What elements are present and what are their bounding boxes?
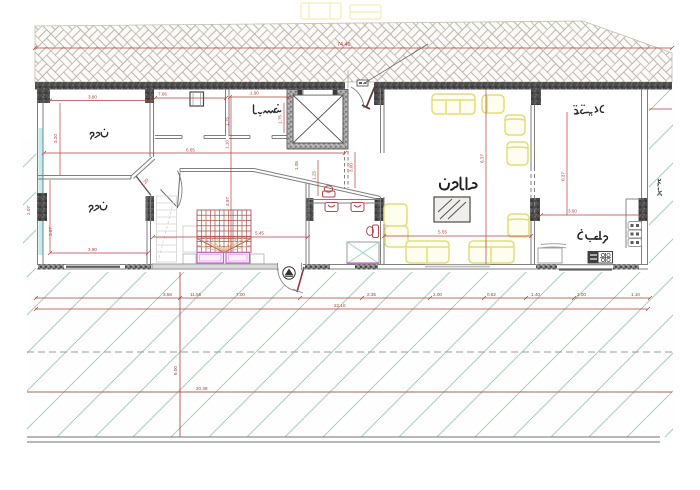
svg-text:1.90: 1.90 [250, 91, 259, 96]
svg-text:1.75: 1.75 [278, 115, 283, 124]
svg-text:11.55: 11.55 [190, 292, 202, 297]
svg-text:7.00: 7.00 [236, 292, 245, 297]
svg-text:2.35: 2.35 [367, 292, 376, 297]
svg-text:20.38: 20.38 [196, 386, 208, 391]
svg-text:3.58: 3.58 [163, 292, 172, 297]
svg-text:3.67: 3.67 [48, 227, 53, 236]
svg-text:1.10: 1.10 [225, 140, 230, 149]
svg-text:3.20: 3.20 [53, 134, 58, 143]
svg-text:3.97: 3.97 [225, 197, 230, 206]
svg-text:1.40: 1.40 [531, 292, 540, 297]
svg-text:1.10: 1.10 [631, 292, 640, 297]
svg-text:5.45: 5.45 [255, 231, 264, 236]
svg-text:7.66: 7.66 [158, 92, 167, 97]
svg-text:3.90: 3.90 [88, 95, 97, 100]
svg-text:3.90: 3.90 [568, 209, 577, 214]
svg-text:2.07: 2.07 [26, 206, 31, 215]
svg-text:1.25: 1.25 [312, 171, 317, 180]
svg-text:74.40: 74.40 [337, 42, 351, 48]
svg-text:22.10: 22.10 [334, 303, 346, 308]
svg-text:5.55: 5.55 [438, 230, 447, 235]
svg-text:6.85: 6.85 [186, 148, 195, 153]
svg-text:6.00: 6.00 [173, 366, 178, 375]
svg-text:3.90: 3.90 [88, 247, 97, 252]
svg-text:3.00: 3.00 [349, 163, 354, 172]
svg-text:6.37: 6.37 [561, 172, 566, 181]
svg-text:6.37: 6.37 [480, 154, 485, 163]
svg-text:0.82: 0.82 [487, 292, 496, 297]
svg-text:1.75: 1.75 [225, 117, 230, 126]
svg-text:1.05: 1.05 [294, 161, 299, 170]
svg-text:2.00: 2.00 [577, 292, 586, 297]
svg-text:2.00: 2.00 [433, 292, 442, 297]
